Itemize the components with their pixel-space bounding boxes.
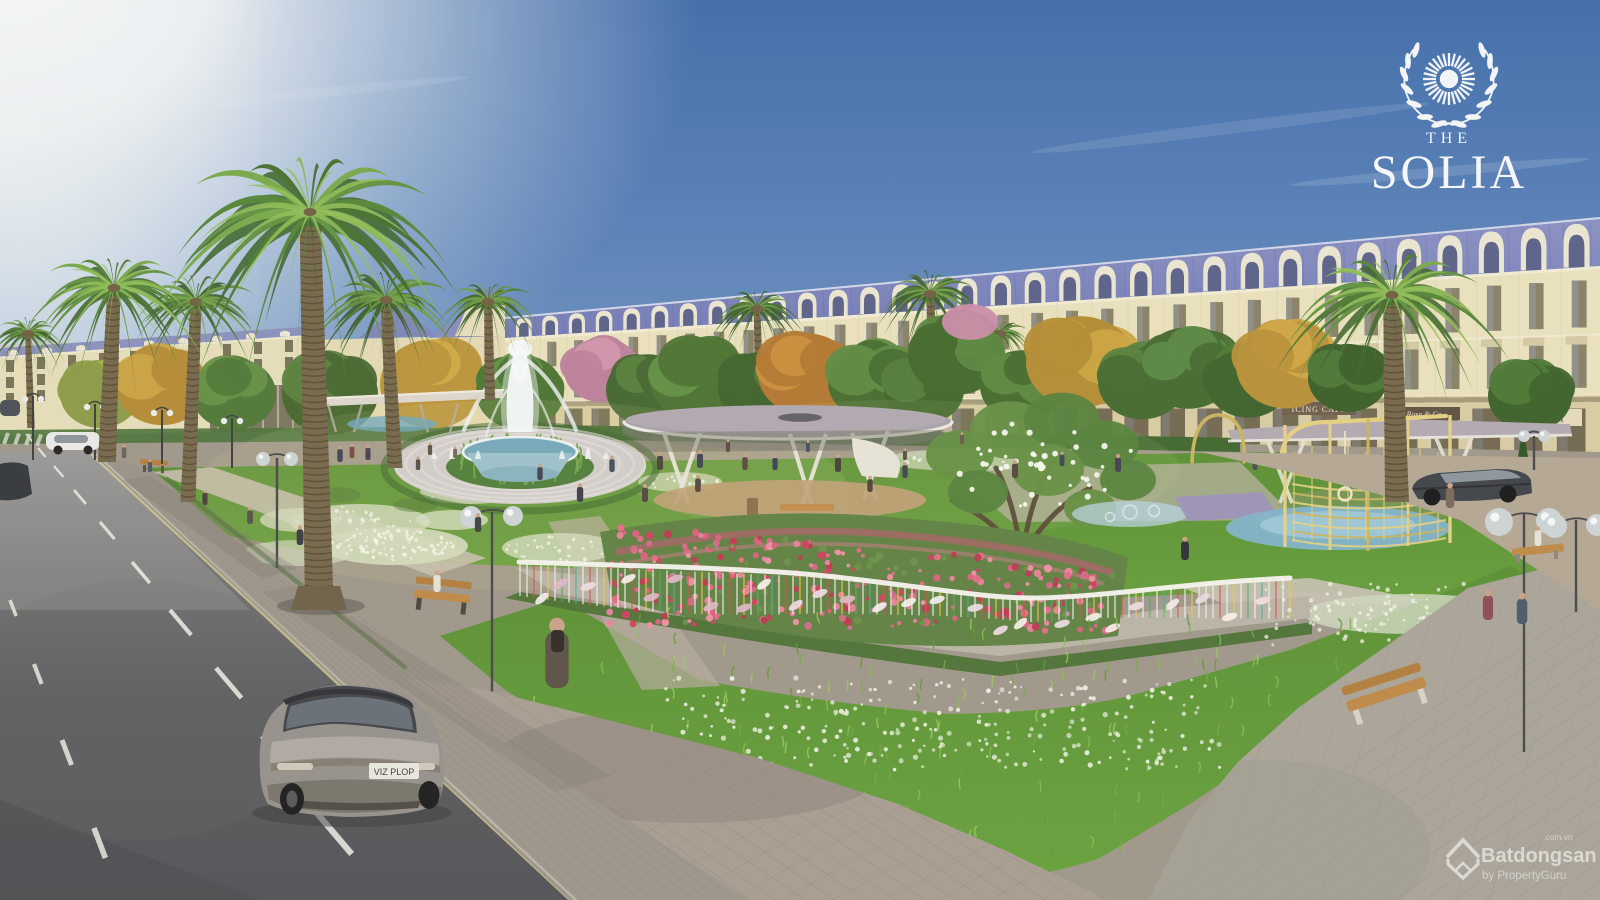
svg-text:Batdongsan: Batdongsan — [1481, 845, 1597, 867]
svg-text:by PropertyGuru: by PropertyGuru — [1482, 870, 1566, 882]
svg-text:.com.vn: .com.vn — [1543, 832, 1573, 842]
svg-text:SOLIA: SOLIA — [1371, 146, 1527, 199]
svg-text:THE: THE — [1426, 130, 1472, 147]
